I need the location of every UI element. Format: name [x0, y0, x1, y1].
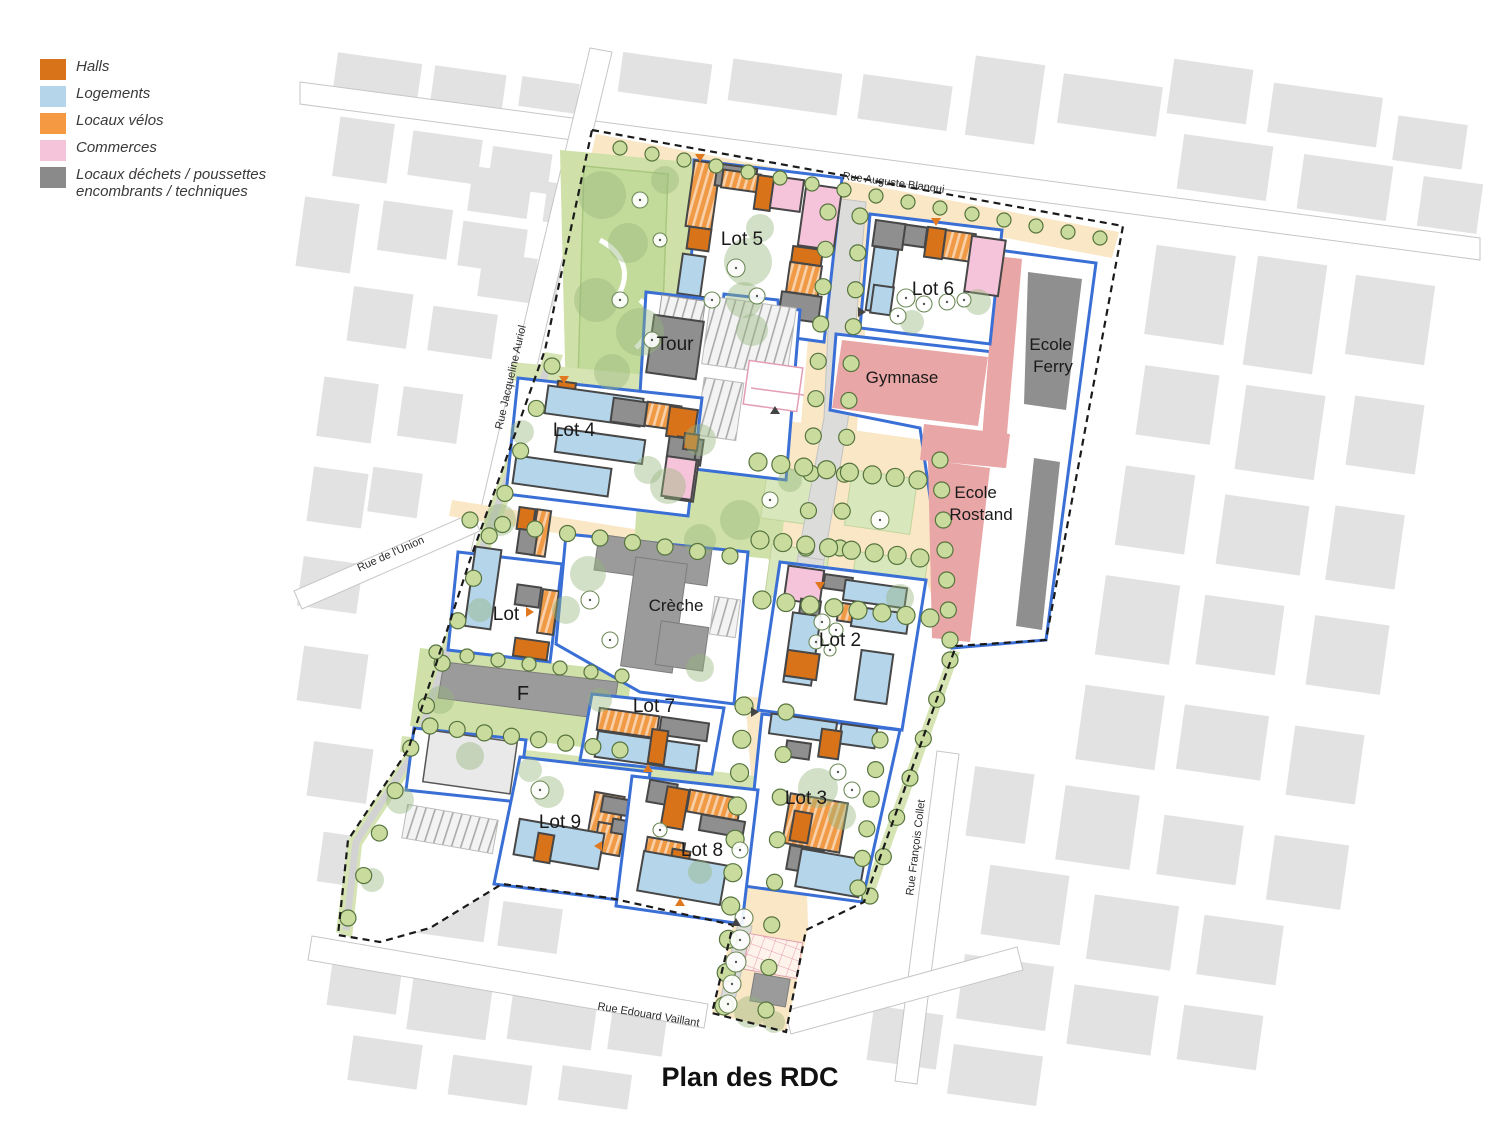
street-tree — [818, 241, 834, 257]
street-tree — [805, 428, 821, 444]
context-building — [1135, 365, 1219, 445]
street-tree — [503, 728, 519, 744]
courtyard-tree-dot — [539, 789, 541, 791]
street-tree — [749, 453, 767, 471]
courtyard-tree-dot — [946, 301, 948, 303]
context-building — [497, 901, 563, 954]
street-tree — [560, 526, 576, 542]
context-building — [1243, 256, 1328, 375]
street-tree — [690, 544, 706, 560]
street-tree — [915, 731, 931, 747]
courtyard-tree-dot — [735, 961, 737, 963]
street-tree — [940, 602, 956, 618]
label-lot2: Lot 2 — [819, 630, 861, 651]
street-tree — [886, 468, 904, 486]
street-tree — [863, 791, 879, 807]
courtyard-tree-dot — [879, 519, 881, 521]
legend-label: Locaux déchets / poussettes encombrants … — [76, 166, 300, 200]
street-tree — [875, 849, 891, 865]
context-building — [1167, 59, 1254, 125]
legend-item-commerces: Commerces — [40, 139, 300, 161]
street-tree — [476, 725, 492, 741]
context-building — [316, 376, 379, 443]
courtyard-tree-dot — [743, 917, 745, 919]
courtyard-tree-dot — [727, 1003, 729, 1005]
context-building — [1055, 785, 1140, 870]
courtyard-tree-dot — [711, 299, 713, 301]
street-tree — [625, 535, 641, 551]
street-tree — [939, 572, 955, 588]
courtyard-tree-dot — [639, 199, 641, 201]
courtyard-tree-dot — [735, 267, 737, 269]
street-tree — [888, 546, 906, 564]
label-tour: Tour — [657, 334, 695, 355]
street-tree — [820, 204, 836, 220]
street-tree — [764, 917, 780, 933]
tree-canopy-blob — [518, 758, 542, 782]
street-tree — [513, 443, 529, 459]
context-building — [1267, 83, 1383, 148]
street-tree — [897, 606, 915, 624]
street-tree — [466, 570, 482, 586]
street-tree — [767, 874, 783, 890]
courtyard-tree-dot — [756, 295, 758, 297]
tree-canopy-blob — [510, 420, 534, 444]
context-building — [1392, 115, 1468, 169]
courtyard-tree-dot — [651, 339, 653, 341]
street-tree — [815, 279, 831, 295]
street-tree — [850, 245, 866, 261]
label-creche: Crèche — [649, 596, 704, 615]
tree-canopy-blob — [608, 223, 648, 263]
street-tree — [937, 542, 953, 558]
street-tree — [965, 207, 979, 221]
legend-item-halls: Halls — [40, 58, 300, 80]
context-building — [1086, 894, 1179, 970]
tree-canopy-blob — [552, 596, 580, 624]
street-tree — [751, 531, 769, 549]
courtyard-tree-dot — [851, 789, 853, 791]
street-tree — [873, 604, 891, 622]
street-tree — [772, 456, 790, 474]
street-tree — [761, 959, 777, 975]
context-building — [1115, 466, 1195, 555]
legend-label: Halls — [76, 58, 109, 75]
context-building — [1266, 835, 1349, 910]
velos-swatch — [40, 113, 66, 134]
street-tree — [553, 661, 567, 675]
street-tree — [859, 821, 875, 837]
context-building — [407, 130, 483, 184]
basketball-court — [743, 360, 804, 411]
context-building — [1075, 685, 1165, 770]
street-tree — [340, 910, 356, 926]
street-tree — [1029, 219, 1043, 233]
context-building — [1196, 915, 1284, 986]
street-tree — [997, 213, 1011, 227]
street-tree — [810, 353, 826, 369]
street-tree — [645, 147, 659, 161]
street-tree — [869, 189, 883, 203]
label-f: F — [517, 683, 529, 705]
label-lot9: Lot 9 — [539, 812, 581, 833]
tree-canopy-blob — [828, 802, 856, 830]
street-tree — [911, 549, 929, 567]
street-tree — [921, 609, 939, 627]
street-tree — [837, 183, 851, 197]
street-tree — [558, 735, 574, 751]
context-building — [965, 56, 1045, 145]
street-tree — [852, 208, 868, 224]
street-tree — [840, 463, 858, 481]
street-tree — [753, 591, 771, 609]
street-tree — [813, 316, 829, 332]
page-title: Plan des RDC — [0, 1062, 1500, 1093]
context-building — [965, 766, 1034, 844]
context-building — [477, 251, 538, 303]
context-building — [1297, 154, 1394, 221]
street-tree — [497, 485, 513, 501]
courtyard-tree-dot — [815, 641, 817, 643]
street-tree — [863, 466, 881, 484]
tree-canopy-blob — [736, 314, 768, 346]
courtyard-tree-dot — [769, 499, 771, 501]
street-tree — [758, 1002, 774, 1018]
context-building — [981, 865, 1070, 945]
context-building — [306, 741, 373, 804]
legend: Halls Logements Locaux vélos Commerces L… — [40, 58, 300, 205]
street-tree — [592, 530, 608, 546]
courtyard-tree-dot — [837, 771, 839, 773]
context-building — [467, 166, 533, 219]
label-lot4: Lot 4 — [553, 420, 596, 441]
street-tree — [845, 319, 861, 335]
courtyard-tree-dot — [739, 849, 741, 851]
street-tree — [527, 521, 543, 537]
legend-item-logements: Logements — [40, 85, 300, 107]
street-tree — [613, 141, 627, 155]
context-building — [618, 52, 713, 104]
context-building — [1216, 494, 1310, 575]
courtyard-tree-dot — [609, 639, 611, 641]
label-lot8: Lot 8 — [681, 840, 723, 861]
street-tree — [731, 764, 749, 782]
street-tree — [722, 548, 738, 564]
street-tree — [850, 880, 866, 896]
street-tree — [584, 665, 598, 679]
courtyard-tree-dot — [659, 239, 661, 241]
commerces-swatch — [40, 140, 66, 161]
tree-canopy-blob — [651, 166, 679, 194]
tree-canopy-blob — [686, 654, 714, 682]
context-building — [1176, 704, 1269, 780]
street-tree — [449, 721, 465, 737]
street-tree — [769, 832, 785, 848]
label-lot1: Lot — [493, 604, 520, 625]
tree-canopy-blob — [684, 424, 716, 456]
context-building — [427, 306, 498, 360]
street-tree — [356, 868, 372, 884]
logements-swatch — [40, 86, 66, 107]
street-tree — [773, 171, 787, 185]
street-tree — [585, 739, 601, 755]
context-building — [1177, 134, 1274, 201]
street-tree — [902, 770, 918, 786]
context-building — [306, 466, 368, 528]
context-building — [1095, 575, 1180, 665]
street-tree — [834, 503, 850, 519]
context-building — [1417, 176, 1483, 234]
tree-canopy-blob — [456, 742, 484, 770]
tree-canopy-blob — [594, 354, 630, 390]
street-tree — [843, 356, 859, 372]
tree-canopy-blob — [570, 556, 606, 592]
street-tree — [422, 718, 438, 734]
context-building — [367, 467, 423, 519]
tree-canopy-blob — [688, 860, 712, 884]
street-tree — [495, 517, 511, 533]
context-building — [857, 74, 952, 131]
street-tree — [733, 730, 751, 748]
street-tree — [709, 159, 723, 173]
street-tree — [775, 747, 791, 763]
legend-label: Logements — [76, 85, 150, 102]
halls-swatch — [40, 59, 66, 80]
legend-label: Locaux vélos — [76, 112, 164, 129]
street-tree — [544, 358, 560, 374]
context-building — [1325, 505, 1405, 589]
context-building — [1345, 275, 1435, 365]
dechets-swatch — [40, 167, 66, 188]
context-building — [295, 197, 359, 274]
street-tree — [778, 704, 794, 720]
street-tree — [820, 539, 838, 557]
context-building — [346, 286, 413, 349]
context-building — [296, 646, 368, 710]
courtyard-tree-dot — [731, 983, 733, 985]
street-tree — [849, 601, 867, 619]
street-tree — [865, 544, 883, 562]
label-gymnase: Gymnase — [866, 368, 939, 387]
context-building — [1305, 615, 1389, 695]
context-building — [1057, 73, 1163, 136]
context-building — [377, 200, 453, 259]
tree-canopy-blob — [574, 278, 618, 322]
street-tree — [805, 177, 819, 191]
context-building — [1285, 725, 1364, 804]
street-tree — [909, 471, 927, 489]
street-tree — [531, 732, 547, 748]
context-building — [1345, 395, 1424, 474]
courtyard-tree-dot — [821, 621, 823, 623]
context-building — [1234, 385, 1325, 480]
street-tree — [677, 153, 691, 167]
street-tree — [818, 461, 836, 479]
street-tree — [801, 596, 819, 614]
street-tree — [841, 392, 857, 408]
courtyard-tree-dot — [619, 299, 621, 301]
street-tree — [842, 541, 860, 559]
street-tree — [1093, 231, 1107, 245]
plan-page: Halls Logements Locaux vélos Commerces L… — [0, 0, 1500, 1125]
street-tree — [522, 657, 536, 671]
street-tree — [612, 742, 628, 758]
street-tree — [481, 528, 497, 544]
street-tree — [795, 458, 813, 476]
label-lot6: Lot 6 — [912, 279, 954, 300]
street-tree — [868, 762, 884, 778]
context-building — [397, 386, 463, 444]
tree-canopy-blob — [468, 598, 492, 622]
street-tree — [460, 649, 474, 663]
street-tree — [797, 536, 815, 554]
street-tree — [777, 594, 795, 612]
street-tree — [839, 429, 855, 445]
street-tree — [901, 195, 915, 209]
street-tree — [371, 825, 387, 841]
street-tree — [1061, 225, 1075, 239]
legend-label: Commerces — [76, 139, 157, 156]
courtyard-tree-dot — [923, 303, 925, 305]
street-tree — [934, 482, 950, 498]
courtyard-tree-dot — [739, 939, 741, 941]
context-building — [1177, 1005, 1264, 1071]
street-tree — [854, 850, 870, 866]
tree-canopy-blob — [634, 456, 662, 484]
label-lot7: Lot 7 — [633, 696, 675, 717]
street-tree — [728, 797, 746, 815]
street-tree — [491, 653, 505, 667]
context-building — [1156, 815, 1244, 886]
courtyard-tree-dot — [905, 297, 907, 299]
street-tree — [933, 201, 947, 215]
street-tree — [615, 669, 629, 683]
street-tree — [774, 534, 792, 552]
context-building — [1144, 245, 1236, 345]
context-building — [1196, 595, 1285, 675]
label-lot3: Lot 3 — [785, 788, 827, 809]
legend-item-dechets: Locaux déchets / poussettes encombrants … — [40, 166, 300, 200]
courtyard-tree-dot — [589, 599, 591, 601]
context-building — [1066, 984, 1159, 1055]
tree-canopy-blob — [578, 171, 626, 219]
context-building — [332, 116, 395, 183]
context-building — [728, 59, 843, 116]
street-tree — [462, 512, 478, 528]
street-tree — [528, 400, 544, 416]
context-building — [518, 76, 580, 114]
tree-canopy-blob — [588, 688, 612, 712]
street-tree — [872, 732, 888, 748]
label-lot5: Lot 5 — [721, 229, 763, 250]
street-tree — [387, 783, 403, 799]
street-tree — [724, 864, 742, 882]
legend-item-velos: Locaux vélos — [40, 112, 300, 134]
street-tree — [735, 697, 753, 715]
courtyard-tree-dot — [963, 299, 965, 301]
street-tree — [932, 452, 948, 468]
street-tree — [808, 391, 824, 407]
street-tree — [825, 599, 843, 617]
street-tree — [800, 503, 816, 519]
street-tree — [848, 282, 864, 298]
courtyard-tree-dot — [897, 315, 899, 317]
street-tree — [657, 539, 673, 555]
street-tree — [741, 165, 755, 179]
courtyard-tree-dot — [659, 829, 661, 831]
